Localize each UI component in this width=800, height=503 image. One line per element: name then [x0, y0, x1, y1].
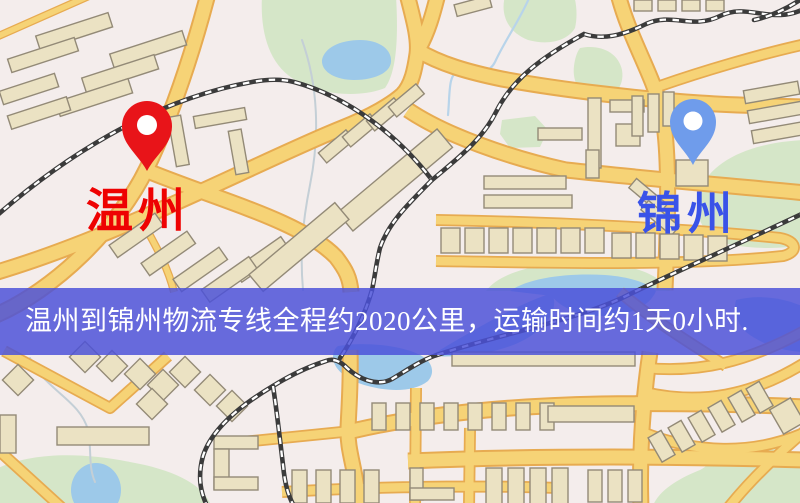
map-image: 温州 锦州 温州到锦州物流专线全程约2020公里，运输时间约1天0小时.	[0, 0, 800, 503]
destination-pin-icon	[667, 97, 719, 167]
base-map	[0, 0, 800, 503]
banner-text: 温州到锦州物流专线全程约2020公里，运输时间约1天0小时.	[0, 288, 800, 355]
origin-pin-icon	[119, 99, 175, 173]
origin-label: 温州	[86, 172, 190, 241]
destination-label: 锦州	[637, 177, 737, 242]
route-info-banner: 温州到锦州物流专线全程约2020公里，运输时间约1天0小时.	[0, 288, 800, 355]
